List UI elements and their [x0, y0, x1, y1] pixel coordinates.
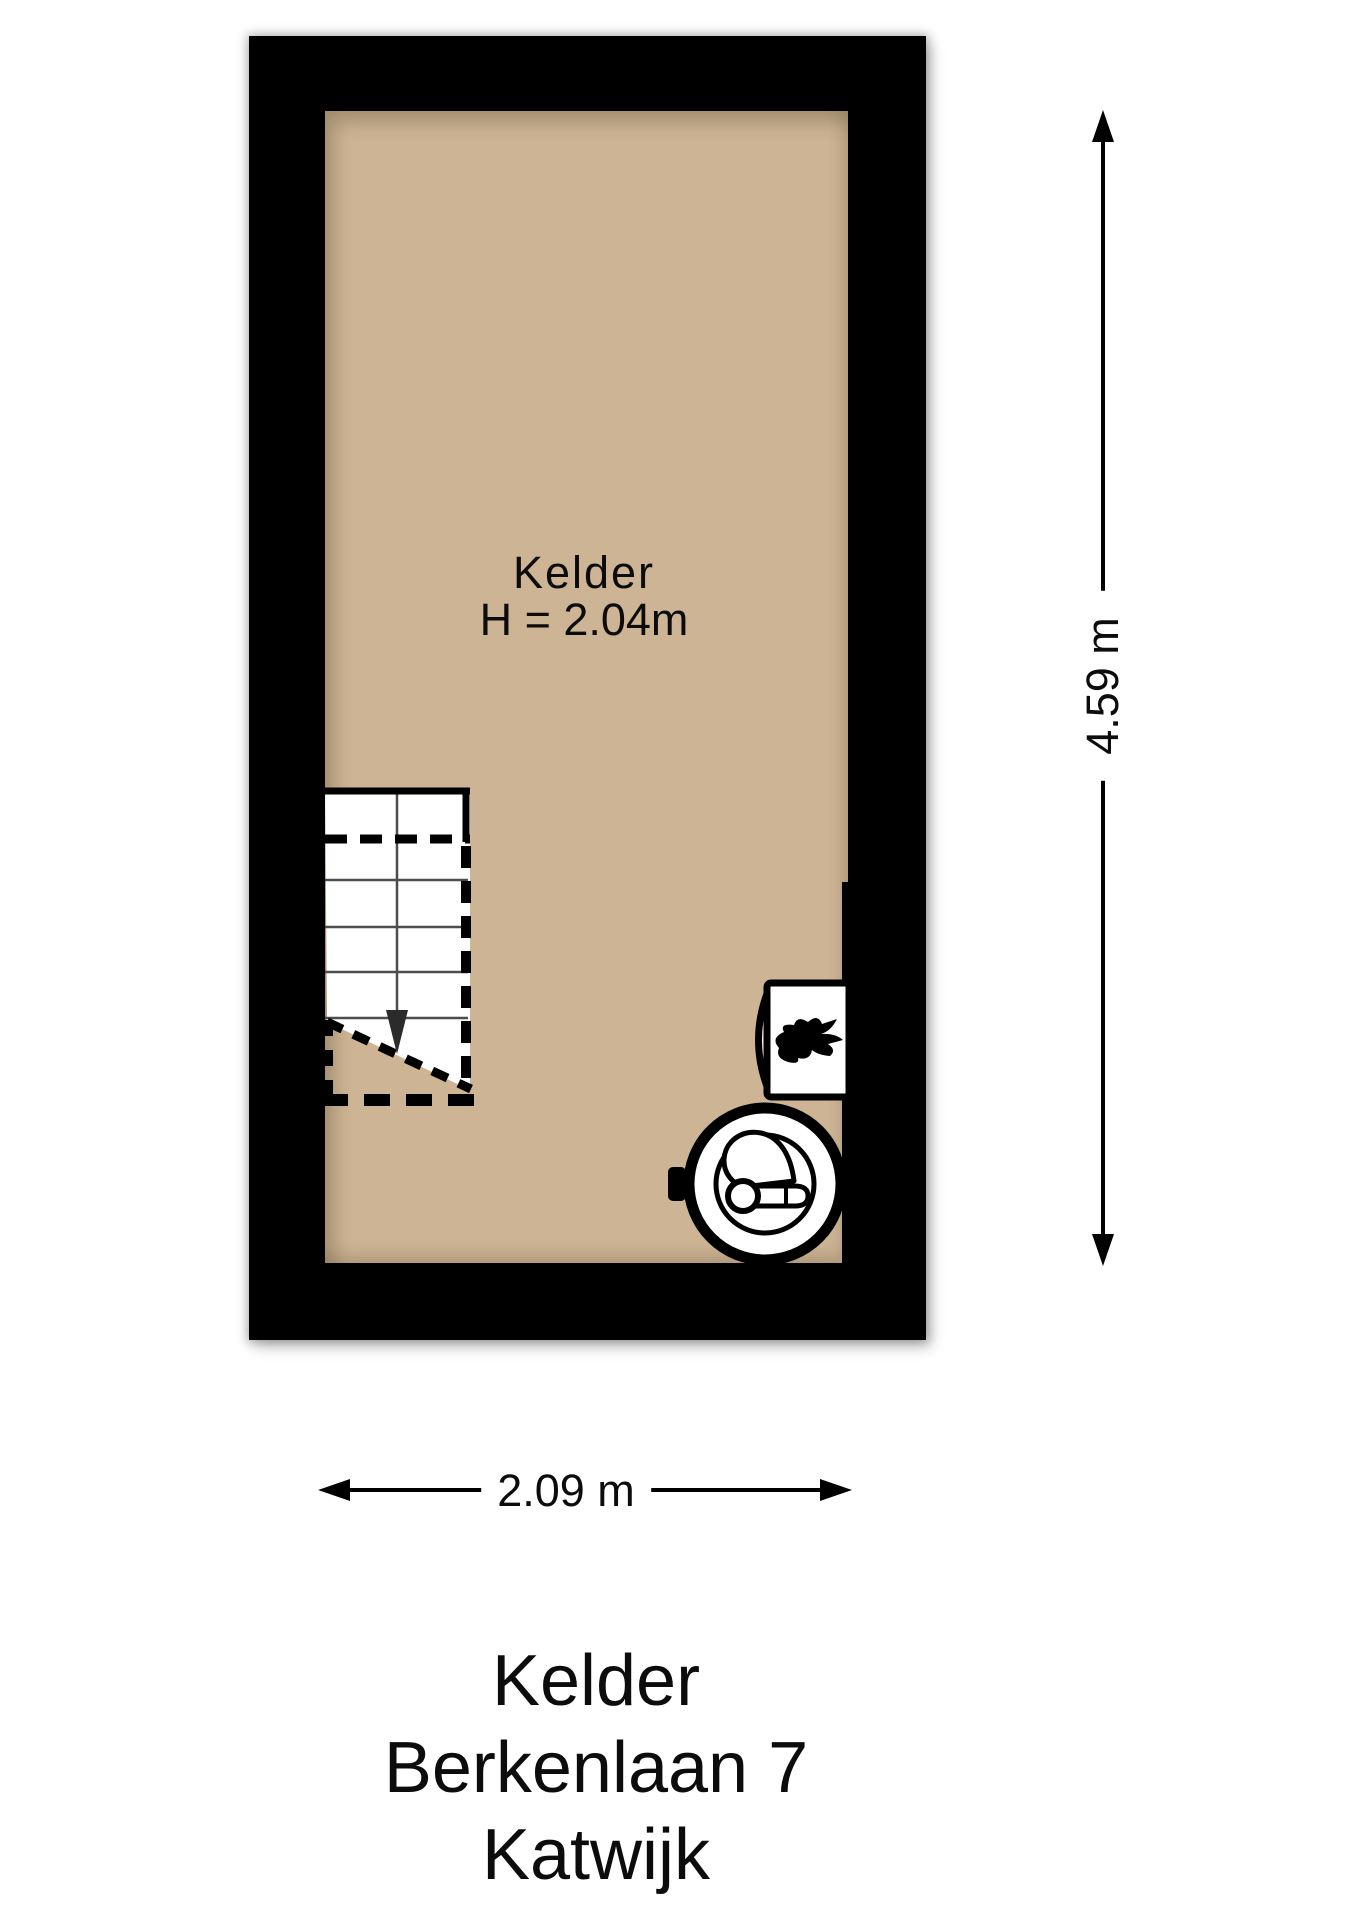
room-label: Kelder H = 2.04m	[480, 549, 689, 643]
tank-tab-left	[668, 1167, 686, 1201]
boiler	[759, 983, 850, 1097]
room-height: H = 2.04m	[480, 596, 689, 643]
plan-title-room: Kelder	[384, 1638, 808, 1725]
plan-title-street: Berkenlaan 7	[384, 1725, 808, 1812]
arrow-down-icon	[1092, 1234, 1114, 1266]
room-name: Kelder	[480, 549, 689, 596]
water-tank-icon	[668, 1108, 856, 1260]
tank-knob	[728, 1181, 758, 1211]
dimension-label-vertical: 4.59 m	[1077, 591, 1129, 781]
arrow-right-icon	[820, 1479, 852, 1501]
dimension-label-horizontal: 2.09 m	[481, 1465, 651, 1517]
arrow-left-icon	[318, 1479, 350, 1501]
arrow-up-icon	[1092, 110, 1114, 142]
staircase	[322, 788, 476, 1102]
plan-title-city: Katwijk	[384, 1812, 808, 1899]
floorplan-page: { "room": { "name": "Kelder", "height_la…	[0, 0, 1358, 1920]
plan-graphics	[0, 0, 1358, 1920]
plan-title: Kelder Berkenlaan 7 Katwijk	[384, 1638, 808, 1899]
